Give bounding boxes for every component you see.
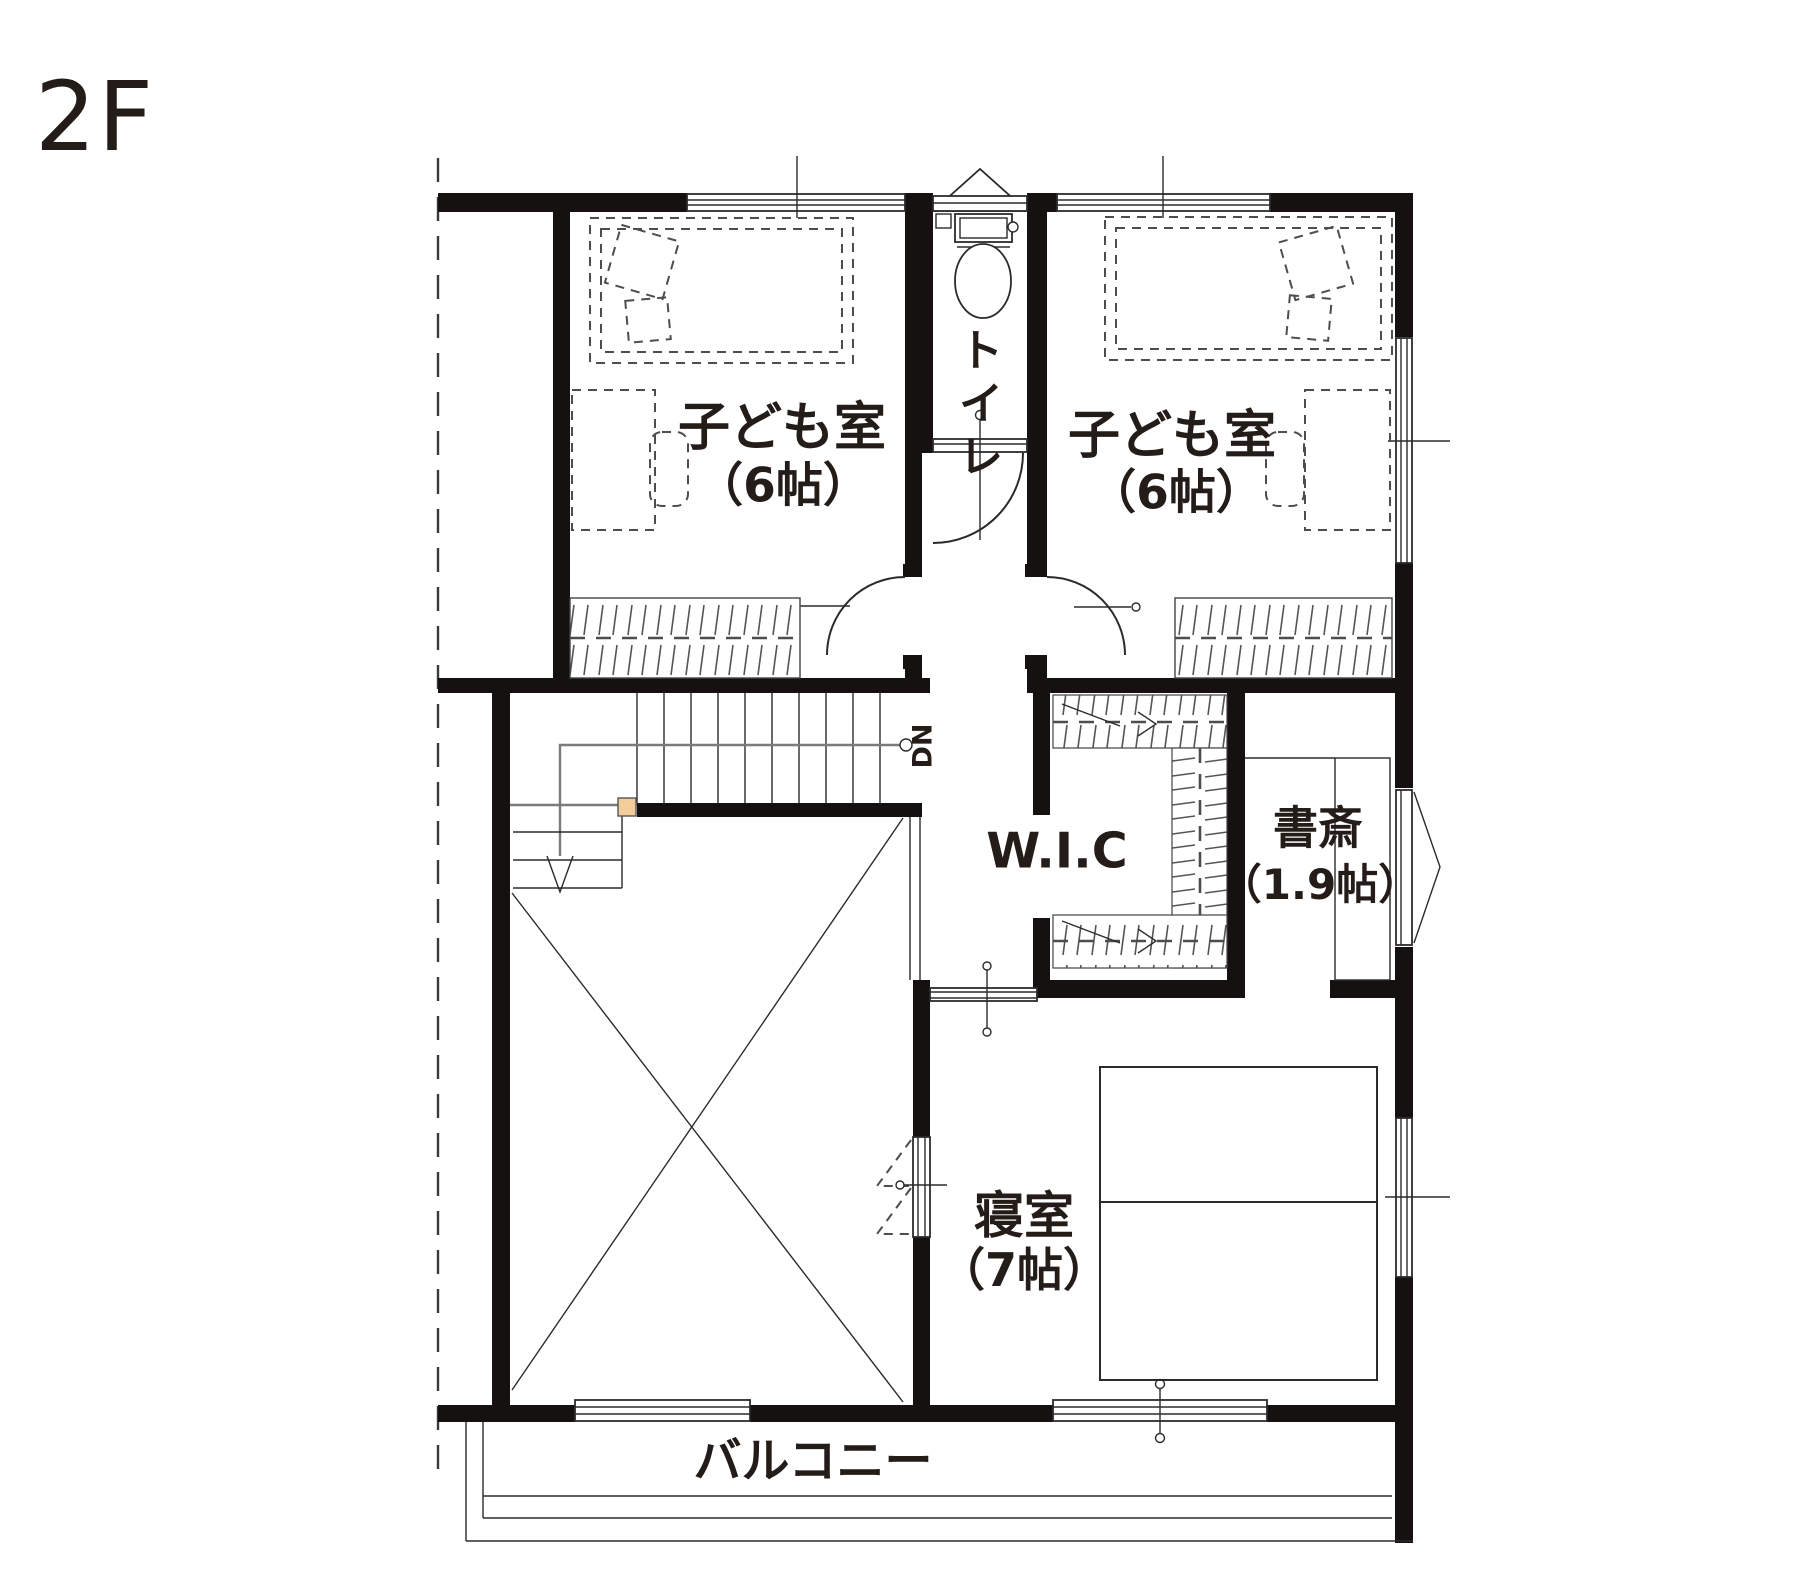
floor-label: 2F [35, 69, 155, 165]
room-area-child-left: （6帖） [696, 463, 870, 510]
door-bedroom-sliding [930, 962, 1037, 1036]
window-child-left-top [687, 156, 905, 218]
staircase [510, 693, 912, 892]
room-area-study: （1.9帖） [1220, 864, 1420, 906]
closet-child-left [570, 598, 800, 678]
desk-child-left [572, 390, 688, 530]
stair-down-arrow [547, 856, 573, 892]
room-area-bedroom: （7帖） [939, 1247, 1109, 1293]
room-label-bedroom: 寝室 [974, 1191, 1074, 1241]
door-child-right [1047, 577, 1140, 655]
closet-child-right [1175, 598, 1392, 678]
window-toilet-bay [933, 169, 1027, 211]
stair-newel-post [618, 798, 636, 816]
room-label-wic: W.I.C [986, 827, 1127, 876]
floor-plan-2f: 2F 子ども室 （6帖） 子ども室 （6帖） トイレ W.I.C 書斎 （1.9… [0, 0, 1800, 1584]
window-bedroom-bottom [1053, 1380, 1267, 1443]
toilet-fixture [936, 214, 1018, 318]
stair-railing [910, 817, 920, 980]
bed-child-right [1105, 217, 1392, 360]
room-label-study: 書斎 [1273, 806, 1363, 851]
desk-child-right [1266, 390, 1390, 530]
window-child-right-side [1388, 338, 1450, 563]
void-opening [512, 818, 903, 1402]
window-bedroom-side [1385, 1118, 1450, 1277]
room-label-child-left: 子ども室 [678, 402, 886, 454]
stairs-down-label: DN [910, 723, 937, 768]
room-label-toilet: トイレ [955, 327, 1000, 486]
bedroom-bed [1100, 1067, 1377, 1380]
window-child-right-top [1057, 156, 1270, 218]
window-void-bottom [575, 1400, 750, 1421]
window-bedroom-inner-casement [877, 1137, 947, 1237]
room-area-child-right: （6帖） [1089, 470, 1263, 517]
room-label-child-right: 子ども室 [1068, 410, 1276, 462]
balcony-outline [466, 1422, 1413, 1541]
room-label-balcony: バルコニー [693, 1437, 932, 1485]
stair-handrail [560, 745, 903, 856]
floor-plan-drawing [0, 0, 1800, 1584]
bed-child-left [590, 218, 853, 363]
